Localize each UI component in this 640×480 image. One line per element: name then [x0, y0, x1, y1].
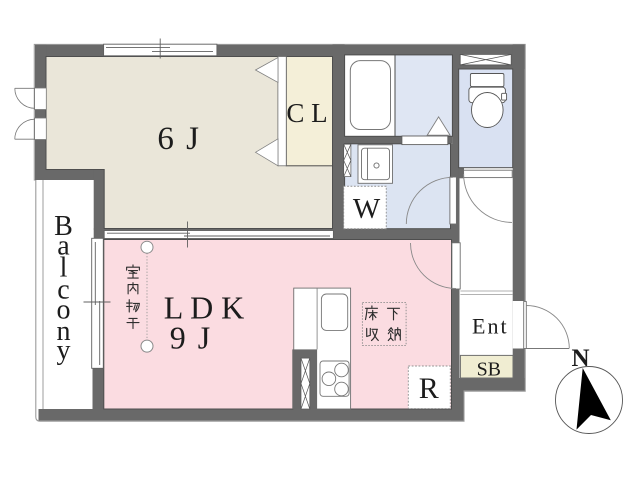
- svg-text:Ent: Ent: [472, 314, 509, 339]
- svg-text:9 J: 9 J: [170, 320, 212, 356]
- svg-text:y: y: [57, 335, 71, 366]
- svg-text:C L: C L: [286, 98, 327, 128]
- svg-text:SB: SB: [477, 359, 501, 381]
- svg-text:N: N: [571, 345, 589, 372]
- svg-text:R: R: [419, 372, 439, 405]
- svg-text:6 J: 6 J: [157, 121, 201, 157]
- svg-text:W: W: [353, 193, 381, 225]
